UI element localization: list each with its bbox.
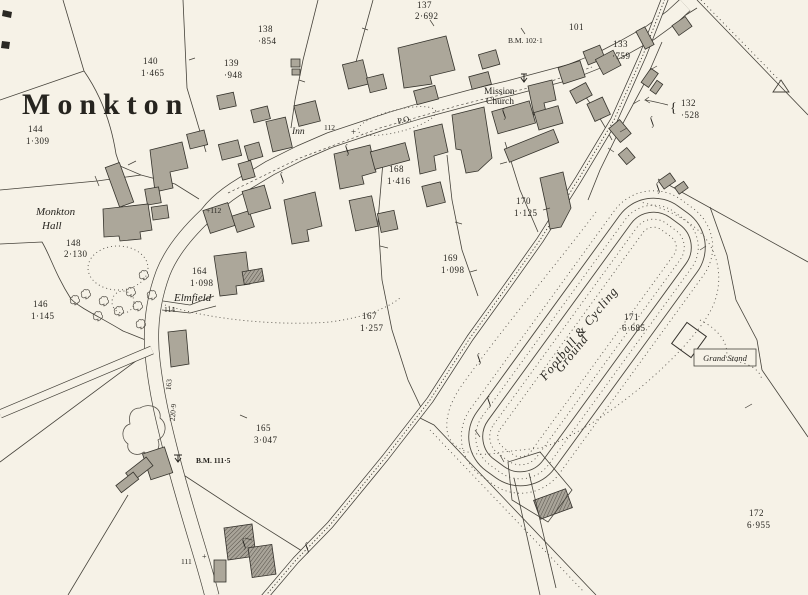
svg-text:112: 112 <box>324 123 335 132</box>
svg-text:133: 133 <box>613 39 628 49</box>
svg-text:6·955: 6·955 <box>747 520 771 530</box>
svg-text:1·098: 1·098 <box>190 278 214 288</box>
svg-text:167: 167 <box>362 311 377 321</box>
svg-text:Elmfield: Elmfield <box>173 292 212 304</box>
svg-text:168: 168 <box>389 164 404 174</box>
svg-text:1·309: 1·309 <box>26 136 50 146</box>
svg-text:164: 164 <box>192 266 207 276</box>
svg-text:137: 137 <box>417 0 432 10</box>
svg-text:6·685: 6·685 <box>622 323 646 333</box>
svg-text:140: 140 <box>143 56 158 66</box>
svg-text:1·125: 1·125 <box>514 208 538 218</box>
svg-text:132: 132 <box>681 98 696 108</box>
svg-text:111: 111 <box>181 557 192 566</box>
svg-text:Inn: Inn <box>291 127 305 137</box>
svg-text:144: 144 <box>28 124 43 134</box>
svg-text:+112: +112 <box>206 206 221 215</box>
svg-text:·854: ·854 <box>258 36 277 46</box>
svg-text:146: 146 <box>33 299 48 309</box>
svg-text:B.M. 102·1: B.M. 102·1 <box>508 36 543 45</box>
svg-text:Monkton: Monkton <box>35 206 76 218</box>
svg-text:114: 114 <box>164 305 175 314</box>
svg-text:220·9: 220·9 <box>168 403 179 421</box>
svg-text:172: 172 <box>749 508 764 518</box>
svg-text:Grand Stand: Grand Stand <box>703 353 747 363</box>
svg-text:+: + <box>351 127 356 137</box>
svg-text:165: 165 <box>256 423 271 433</box>
svg-text:1·257: 1·257 <box>360 323 384 333</box>
svg-text:+: + <box>202 552 207 561</box>
svg-text:101: 101 <box>569 22 584 32</box>
svg-text:163: 163 <box>164 378 174 390</box>
svg-text:1·465: 1·465 <box>141 68 165 78</box>
svg-text:{: { <box>670 101 677 116</box>
svg-text:1·098: 1·098 <box>441 265 465 275</box>
svg-text:Church: Church <box>486 97 514 107</box>
svg-text:·759: ·759 <box>612 51 631 61</box>
svg-text:171: 171 <box>624 312 639 322</box>
svg-text:148: 148 <box>66 238 81 248</box>
svg-text:139: 139 <box>224 58 239 68</box>
svg-text:3·047: 3·047 <box>254 435 278 445</box>
svg-text:1·145: 1·145 <box>31 311 55 321</box>
svg-text:170: 170 <box>516 196 531 206</box>
svg-text:·528: ·528 <box>681 110 700 120</box>
svg-text:Hall: Hall <box>41 220 62 232</box>
svg-text:169: 169 <box>443 253 458 263</box>
svg-text:138: 138 <box>258 24 273 34</box>
svg-text:Monkton: Monkton <box>22 88 189 121</box>
svg-text:B.M. 111·5: B.M. 111·5 <box>196 456 231 465</box>
svg-text:Mission: Mission <box>484 87 515 97</box>
svg-text:1·416: 1·416 <box>387 176 411 186</box>
svg-text:·948: ·948 <box>224 70 243 80</box>
svg-text:2·692: 2·692 <box>415 11 439 21</box>
svg-text:2·130: 2·130 <box>64 249 88 259</box>
